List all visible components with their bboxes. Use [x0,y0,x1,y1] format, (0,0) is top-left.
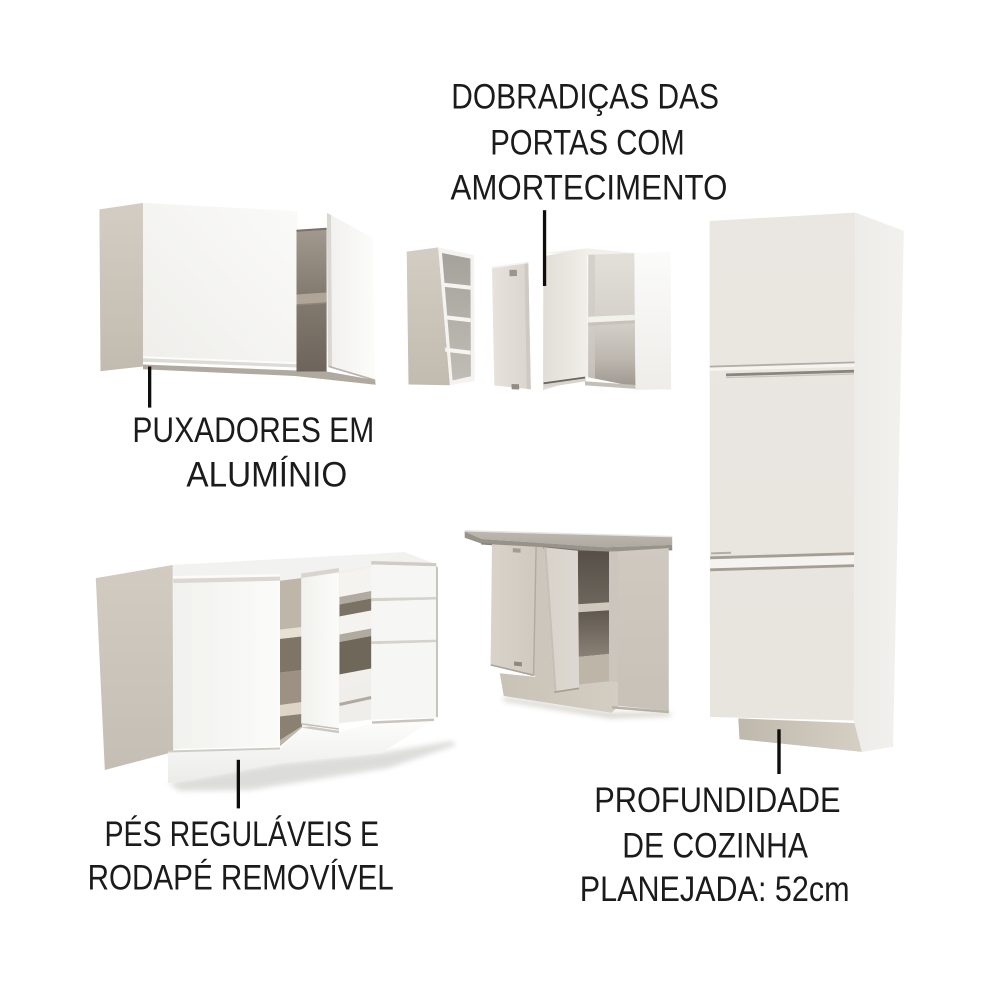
svg-text:PLANEJADA: 52cm: PLANEJADA: 52cm [580,869,850,909]
svg-text:RODAPÉ REMOVÍVEL: RODAPÉ REMOVÍVEL [88,858,394,898]
svg-text:PÉS REGULÁVEIS E: PÉS REGULÁVEIS E [105,814,380,854]
svg-text:AMORTECIMENTO: AMORTECIMENTO [451,167,728,207]
svg-text:DOBRADIÇAS DAS: DOBRADIÇAS DAS [451,76,719,116]
svg-text:PORTAS COM: PORTAS COM [490,122,685,162]
svg-text:PUXADORES EM: PUXADORES EM [132,410,374,450]
svg-text:ALUMÍNIO: ALUMÍNIO [186,454,347,494]
svg-text:PROFUNDIDADE: PROFUNDIDADE [594,780,840,820]
svg-text:DE COZINHA: DE COZINHA [622,825,808,865]
